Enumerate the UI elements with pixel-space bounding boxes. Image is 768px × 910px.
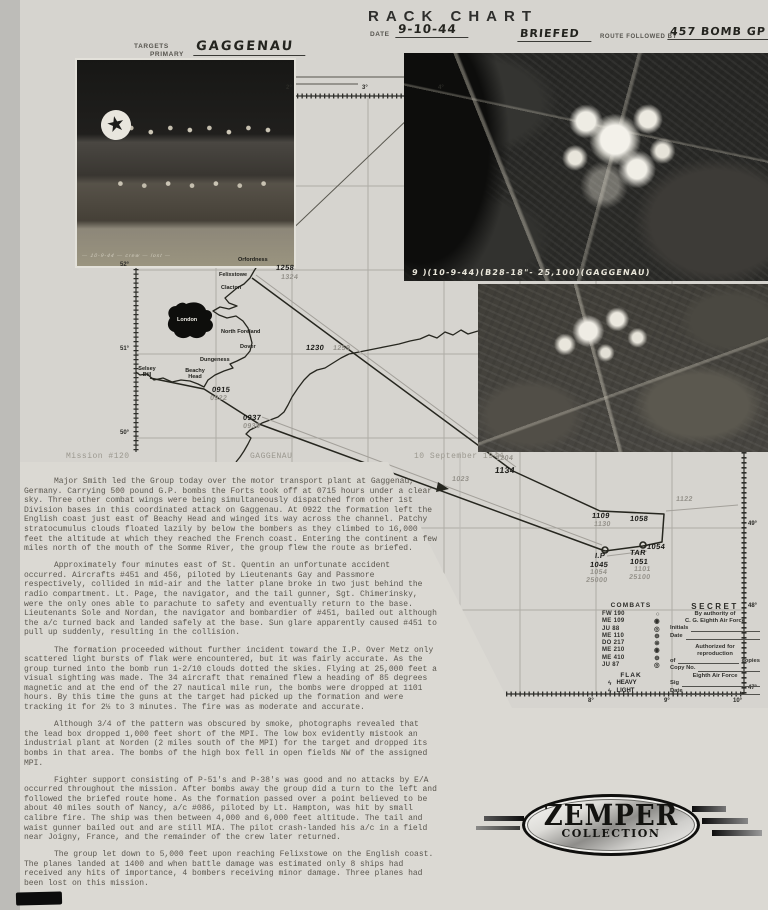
- ip-label: I.P: [594, 551, 605, 560]
- combat-symbol-icon: ◎: [654, 626, 660, 633]
- waypoint-time-pencil: 1122: [676, 496, 694, 503]
- waypoint-time-pencil: 1130: [594, 521, 612, 528]
- narrative-paragraph: Major Smith led the Group today over the…: [24, 477, 438, 554]
- recon-photo: [478, 284, 768, 452]
- place-label-dungeness: Dungeness: [200, 357, 230, 363]
- combat-symbol-icon: ○: [656, 611, 660, 618]
- strike-photo-caption: 9 )(10-9-44)(B28-18"- 25,100)(GAGGENAU): [411, 268, 651, 277]
- secret-classification-box: SECRET By authority of C. G. Eighth Air …: [670, 602, 760, 696]
- narrative-paragraph: The group let down to 5,000 feet upon re…: [24, 850, 438, 888]
- combat-type-row: DO 217⊗: [602, 640, 660, 647]
- combat-symbol-icon: ◉: [654, 647, 660, 654]
- secret-field-label: Date: [670, 688, 683, 696]
- stamp-speed-bar: [484, 816, 524, 821]
- waypoint-time-pencil: 0922: [210, 395, 228, 402]
- stamp-speed-bar: [712, 830, 762, 836]
- combats-title: COMBATS: [602, 602, 660, 609]
- combats-legend: COMBATS FW 190○ ME 109◉ JU 88◎ ME 110⊕ D…: [602, 602, 660, 695]
- combat-type-row: JU 88◎: [602, 626, 660, 633]
- narrative-paragraph: Although 3/4 of the pattern was obscured…: [24, 720, 438, 768]
- combat-type-row: ME 109◉: [602, 618, 660, 625]
- stamp-title: ZEMPER: [525, 801, 697, 832]
- stamp-oval: ZEMPER COLLECTION: [522, 794, 700, 856]
- combat-type: JU 88: [602, 626, 620, 633]
- combat-type: ME 109: [602, 618, 624, 625]
- place-label-beachy-head: Beachy Head: [182, 368, 208, 380]
- combat-type-row: ME 210◉: [602, 647, 660, 654]
- blank-line: [682, 685, 760, 687]
- stamp-speed-bar: [702, 818, 748, 824]
- lon-tick: 4°: [438, 85, 444, 91]
- place-label-london: London: [177, 317, 197, 323]
- target-time-pencil: 1101: [634, 566, 652, 573]
- place-label-felixstowe: Felixstowe: [219, 272, 247, 278]
- flak-row: ϟLIGHT: [602, 688, 660, 695]
- secret-force-line: Eighth Air Force: [670, 673, 760, 680]
- secret-field-label: Initials: [670, 625, 688, 633]
- combat-symbol-icon: ◉: [654, 618, 660, 625]
- combat-symbol-icon: ⊗: [654, 640, 660, 647]
- strike-photo: 9 )(10-9-44)(B28-18"- 25,100)(GAGGENAU): [404, 53, 768, 281]
- combat-type: ME 210: [602, 647, 624, 654]
- combat-type-row: ME 410⊕: [602, 655, 660, 662]
- lon-tick: 9°: [664, 698, 670, 704]
- secret-date-row: Date: [670, 688, 760, 696]
- target-altitude-pencil: 25100: [629, 574, 651, 581]
- lon-tick: 2°: [286, 85, 292, 91]
- combat-type-row: ME 110⊕: [602, 633, 660, 640]
- target-label: TAR: [629, 548, 646, 557]
- waypoint-time-ink: 1258: [275, 263, 294, 272]
- stamp-speed-bar: [476, 826, 520, 830]
- narrative-paragraph: The formation proceeded without further …: [24, 646, 438, 713]
- waypoint-time-ink: 0937: [242, 413, 261, 422]
- secret-field-label: copies: [742, 658, 760, 666]
- combat-type-row: FW 190○: [602, 611, 660, 618]
- secret-field-label: of: [670, 658, 675, 666]
- flak-type: LIGHT: [616, 688, 634, 695]
- waypoint-time-pencil: 0938: [243, 423, 261, 430]
- ip-time-pencil: 1054: [590, 569, 608, 576]
- secret-copies-row: ofcopies: [670, 658, 760, 666]
- combat-symbol-icon: ◎: [654, 662, 660, 669]
- narrative-paragraph: Approximately four minutes east of St. Q…: [24, 561, 438, 638]
- waypoint-time-pencil: 1324: [281, 274, 299, 281]
- blank-line: [686, 638, 760, 640]
- national-star-insignia-icon: ★: [98, 107, 134, 143]
- scan-corner-mark: [16, 891, 62, 905]
- secret-authorized-line: Authorized for: [670, 644, 760, 651]
- blank-line: [698, 670, 760, 672]
- combat-type: ME 410: [602, 655, 624, 662]
- lon-tick: 3°: [362, 85, 368, 91]
- mission-target: GAGGENAU: [250, 452, 292, 461]
- waypoint-time-pencil: 1259: [333, 345, 351, 352]
- zemper-collection-stamp: ZEMPER COLLECTION: [472, 794, 768, 860]
- flak-symbol-icon: ϟ: [608, 688, 611, 695]
- place-label-orfordness: Orfordness: [238, 257, 268, 263]
- narrative-paragraph: Fighter support consisting of P-51's and…: [24, 776, 438, 843]
- lat-tick: 52°: [120, 262, 129, 268]
- waypoint-time-ink: 1058: [629, 514, 648, 523]
- lon-tick: 8°: [588, 698, 594, 704]
- flak-symbol-icon: ϟ: [608, 680, 611, 687]
- place-label-selsey-bill: Selsey Bill: [136, 366, 158, 378]
- secret-field-label: Date: [670, 633, 683, 641]
- lat-tick: 50°: [120, 430, 129, 436]
- flak-type: HEAVY: [616, 680, 636, 687]
- secret-field-label: Sig: [670, 680, 679, 688]
- waypoint-time-ink: 1109: [591, 511, 610, 520]
- secret-authority-line: C. G. Eighth Air Force: [670, 618, 760, 625]
- secret-field-label: Copy No.: [670, 665, 695, 673]
- waypoint-time-pencil: 1204: [496, 455, 514, 462]
- mission-narrative: Major Smith led the Group today over the…: [24, 477, 438, 896]
- lon-tick: 10°: [733, 698, 742, 704]
- secret-reproduction-line: reproduction: [670, 651, 760, 658]
- secret-copy-no-row: Copy No.: [670, 665, 760, 673]
- waypoint-time-ink: 1054: [646, 542, 665, 551]
- blank-line: [678, 662, 738, 664]
- lat-tick: 51°: [120, 346, 129, 352]
- ip-time-ink: 1045: [589, 560, 608, 569]
- target-time-ink: 1051: [629, 557, 648, 566]
- secret-authority-line: By authority of: [670, 611, 760, 618]
- stamp-speed-bar: [692, 806, 726, 812]
- combat-type: ME 110: [602, 633, 624, 640]
- combat-symbol-icon: ⊕: [654, 655, 660, 662]
- waypoint-time-ink: 1134: [494, 465, 515, 475]
- lat-tick: 49°: [748, 521, 757, 527]
- combat-type-row: JU 87◎: [602, 662, 660, 669]
- crew-photo: ★ — 10-9-44 — crew — lost —: [75, 58, 296, 268]
- place-label-north-foreland: North Foreland: [221, 329, 260, 335]
- combat-type: FW 190: [602, 611, 625, 618]
- flak-title: FLAK: [602, 672, 660, 679]
- crew-photo-caption: — 10-9-44 — crew — lost —: [82, 253, 172, 259]
- mission-date: 10 September 1944: [414, 452, 504, 461]
- place-label-dover: Dover: [240, 344, 256, 350]
- mission-number: Mission #120: [66, 452, 130, 461]
- combat-type: DO 217: [602, 640, 624, 647]
- secret-title: SECRET: [670, 602, 760, 611]
- waypoint-time-ink: 0915: [211, 385, 230, 394]
- waypoint-time-pencil: 1023: [452, 476, 470, 483]
- secret-initials-row: Initials: [670, 625, 760, 633]
- flak-row: ϟHEAVY: [602, 680, 660, 687]
- blank-line: [691, 630, 760, 632]
- rack-chart-scanned-page: RACK CHART DATE 9-10-44 BRIEFED ROUTE FO…: [0, 0, 768, 910]
- ip-altitude-pencil: 25000: [586, 577, 608, 584]
- blank-line: [686, 693, 760, 695]
- combat-symbol-icon: ⊕: [654, 633, 660, 640]
- secret-sig-row: Sig: [670, 680, 760, 688]
- waypoint-time-ink: 1230: [305, 343, 324, 352]
- combat-type: JU 87: [602, 662, 620, 669]
- secret-date-row: Date: [670, 633, 760, 641]
- place-label-clacton: Clacton: [221, 285, 241, 291]
